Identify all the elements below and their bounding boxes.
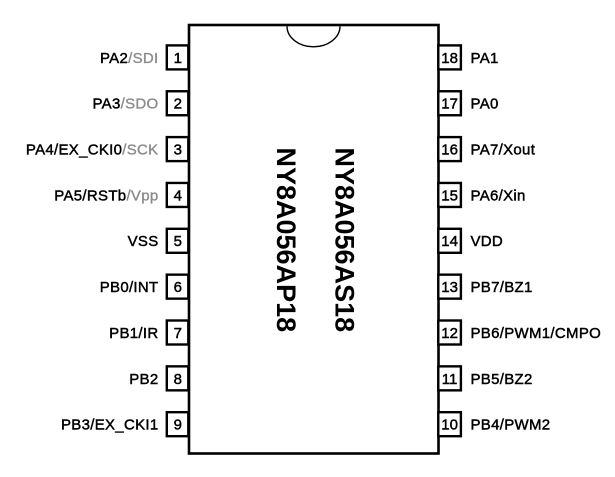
svg-text:18: 18 bbox=[441, 50, 458, 67]
svg-text:PB7/BZ1: PB7/BZ1 bbox=[471, 279, 533, 296]
svg-text:5: 5 bbox=[174, 233, 182, 250]
svg-text:PA1: PA1 bbox=[471, 50, 499, 67]
svg-text:VSS: VSS bbox=[128, 233, 159, 250]
svg-text:7: 7 bbox=[174, 325, 182, 342]
svg-text:11: 11 bbox=[442, 371, 458, 388]
svg-text:PA7/Xout: PA7/Xout bbox=[471, 142, 536, 159]
svg-text:PA3/SDO: PA3/SDO bbox=[92, 96, 158, 113]
svg-text:NY8A056AS18: NY8A056AS18 bbox=[330, 148, 360, 333]
svg-text:13: 13 bbox=[441, 279, 458, 296]
svg-text:PA6/Xin: PA6/Xin bbox=[471, 187, 526, 204]
svg-text:PB2: PB2 bbox=[129, 371, 158, 388]
svg-text:2: 2 bbox=[174, 96, 182, 113]
svg-text:PB3/EX_CKI1: PB3/EX_CKI1 bbox=[61, 417, 159, 434]
svg-text:VDD: VDD bbox=[471, 233, 504, 250]
svg-text:1: 1 bbox=[174, 50, 182, 67]
svg-text:9: 9 bbox=[174, 417, 182, 434]
svg-text:10: 10 bbox=[441, 417, 458, 434]
svg-text:PA2/SDI: PA2/SDI bbox=[100, 50, 159, 67]
svg-text:6: 6 bbox=[174, 279, 182, 296]
svg-text:14: 14 bbox=[441, 233, 458, 250]
svg-text:8: 8 bbox=[174, 371, 182, 388]
svg-text:3: 3 bbox=[174, 142, 182, 159]
svg-text:PA4/EX_CKI0/SCK: PA4/EX_CKI0/SCK bbox=[26, 142, 159, 159]
svg-text:12: 12 bbox=[441, 325, 458, 342]
svg-text:PB5/BZ2: PB5/BZ2 bbox=[471, 371, 533, 388]
svg-text:PA5/RSTb/Vpp: PA5/RSTb/Vpp bbox=[54, 187, 158, 204]
svg-text:17: 17 bbox=[441, 96, 458, 113]
svg-text:PB6/PWM1/CMPO: PB6/PWM1/CMPO bbox=[471, 325, 602, 342]
svg-text:PA0: PA0 bbox=[471, 96, 499, 113]
svg-text:15: 15 bbox=[441, 187, 458, 204]
svg-text:PB4/PWM2: PB4/PWM2 bbox=[471, 417, 551, 434]
svg-text:16: 16 bbox=[441, 142, 458, 159]
svg-text:4: 4 bbox=[174, 187, 182, 204]
svg-text:PB1/IR: PB1/IR bbox=[109, 325, 158, 342]
svg-text:NY8A056AP18: NY8A056AP18 bbox=[271, 148, 301, 333]
svg-text:PB0/INT: PB0/INT bbox=[100, 279, 159, 296]
